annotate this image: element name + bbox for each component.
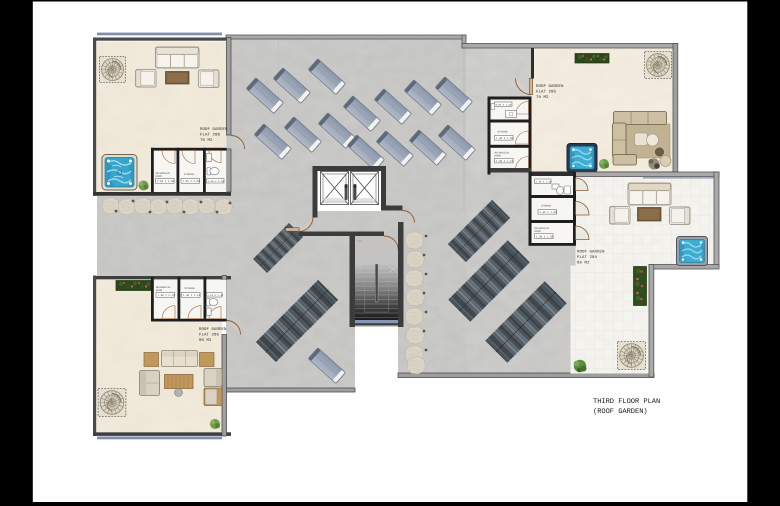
svg-text:0.95 X 1.30: 0.95 X 1.30 <box>496 104 512 107</box>
svg-text:FLAT 204: FLAT 204 <box>577 255 598 260</box>
svg-text:1.20 X 2.50: 1.20 X 2.50 <box>208 180 225 183</box>
svg-text:80 M2: 80 M2 <box>199 338 212 343</box>
svg-text:ROOF GARDEN: ROOF GARDEN <box>536 84 564 89</box>
svg-text:ROOF GARDEN: ROOF GARDEN <box>577 250 605 255</box>
svg-text:STORAGE: STORAGE <box>184 173 195 176</box>
svg-text:2.50 X 2.50: 2.50 X 2.50 <box>157 180 175 183</box>
svg-text:1.50 X 1.55: 1.50 X 1.55 <box>536 235 554 238</box>
svg-text:FLAT 205: FLAT 205 <box>536 90 557 95</box>
svg-text:THIRD FLOOR PLAN: THIRD FLOOR PLAN <box>593 398 660 406</box>
svg-text:FLAT 206: FLAT 206 <box>199 333 220 338</box>
svg-text:1.40 X 1.55: 1.40 X 1.55 <box>540 211 558 214</box>
svg-text:ROOM: ROOM <box>535 230 542 233</box>
svg-text:FLAT 208: FLAT 208 <box>200 133 221 138</box>
svg-text:1.50 X 1.15: 1.50 X 1.15 <box>496 160 514 163</box>
svg-text:ROOF GARDEN: ROOF GARDEN <box>199 327 227 332</box>
svg-text:86 M2: 86 M2 <box>577 261 590 266</box>
svg-text:ROOM: ROOM <box>156 289 163 292</box>
svg-text:70 M2: 70 M2 <box>200 138 213 143</box>
svg-text:STORAGE: STORAGE <box>541 205 552 208</box>
svg-text:(ROOF GARDEN): (ROOF GARDEN) <box>593 407 648 416</box>
svg-text:1.15 X 2.15: 1.15 X 2.15 <box>207 294 223 297</box>
svg-text:79 M2: 79 M2 <box>536 95 549 100</box>
svg-text:17R: 17R <box>357 240 362 243</box>
svg-text:1.19 X 1.40: 1.19 X 1.40 <box>536 181 552 184</box>
svg-text:STORAGE: STORAGE <box>498 131 509 134</box>
svg-text:1.50 X 2.15: 1.50 X 2.15 <box>158 294 176 297</box>
svg-text:ROOF GARDEN: ROOF GARDEN <box>200 127 228 132</box>
svg-text:1.40 X 2.15: 1.40 X 2.15 <box>183 294 201 297</box>
svg-text:ROOM: ROOM <box>156 175 163 178</box>
svg-text:ROOM: ROOM <box>495 155 502 158</box>
svg-text:STORAGE: STORAGE <box>185 287 196 290</box>
svg-text:1.90 X 2.50: 1.90 X 2.50 <box>183 180 201 183</box>
svg-text:1.40 X 1.55: 1.40 X 1.55 <box>496 137 514 140</box>
